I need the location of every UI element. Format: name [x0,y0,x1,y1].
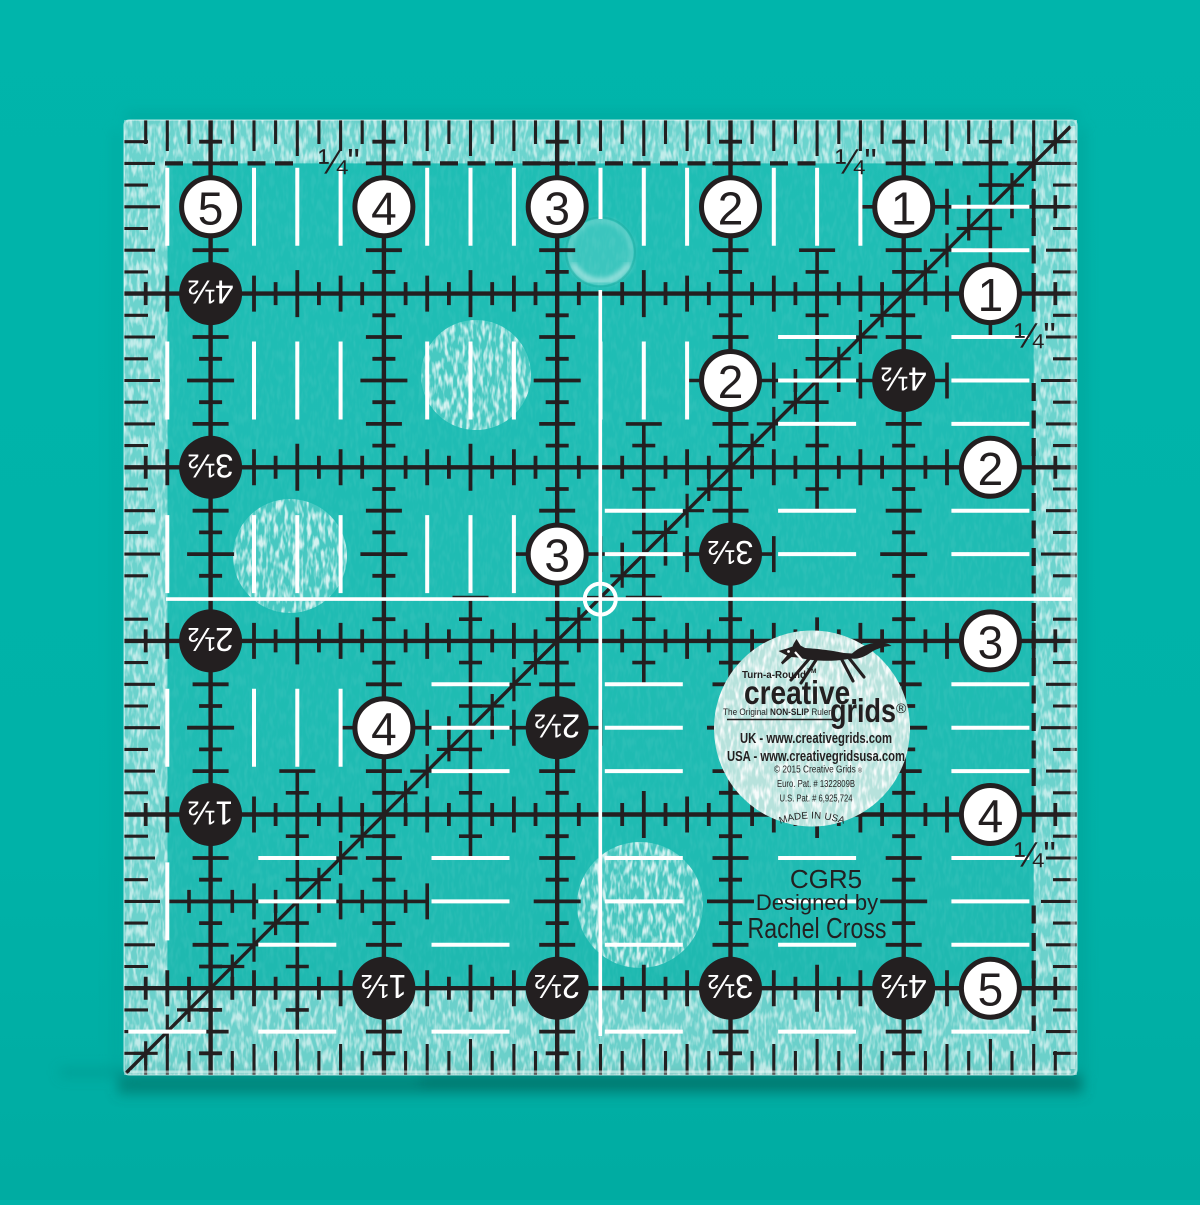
svg-text:3½: 3½ [188,447,234,484]
svg-text:3: 3 [544,182,570,234]
svg-text:2½: 2½ [188,621,234,658]
svg-text:3½: 3½ [708,534,754,571]
svg-text:4½: 4½ [188,274,234,311]
svg-text:¼": ¼" [1014,836,1056,875]
svg-text:The Original NON-SLIP Ruler: The Original NON-SLIP Ruler [723,707,831,718]
svg-text:5: 5 [198,182,224,234]
svg-text:2½: 2½ [534,708,580,745]
svg-text:1½: 1½ [188,795,234,832]
svg-text:3: 3 [978,616,1004,668]
svg-text:5: 5 [978,964,1004,1016]
svg-text:1: 1 [978,269,1004,321]
svg-text:4: 4 [371,703,397,755]
svg-text:®: ® [896,700,907,716]
svg-text:Rachel Cross: Rachel Cross [748,913,887,945]
svg-text:2: 2 [978,443,1004,495]
svg-text:1½: 1½ [361,968,407,1005]
svg-text:grids: grids [830,692,896,729]
svg-text:Designed by: Designed by [756,890,878,915]
svg-text:© 2015 Creative Grids ®: © 2015 Creative Grids ® [774,765,862,776]
svg-text:4½: 4½ [881,968,927,1005]
svg-text:UK - www.creativegrids.com: UK - www.creativegrids.com [740,730,892,747]
svg-text:2: 2 [718,182,744,234]
svg-text:4: 4 [978,790,1004,842]
svg-text:4½: 4½ [881,361,927,398]
svg-text:¼": ¼" [835,143,877,182]
svg-text:U.S. Pat. # 6,925,724: U.S. Pat. # 6,925,724 [780,794,853,805]
svg-text:2: 2 [718,356,744,408]
svg-text:4: 4 [371,182,397,234]
svg-text:3: 3 [544,530,570,582]
svg-text:2½: 2½ [534,968,580,1005]
svg-text:Euro. Pat. # 1322809B: Euro. Pat. # 1322809B [777,779,855,790]
svg-text:USA - www.creativegridsusa.com: USA - www.creativegridsusa.com [727,748,905,765]
svg-text:¼": ¼" [1014,317,1056,356]
svg-text:1: 1 [891,182,917,234]
svg-text:3½: 3½ [708,968,754,1005]
svg-text:¼": ¼" [318,143,360,182]
